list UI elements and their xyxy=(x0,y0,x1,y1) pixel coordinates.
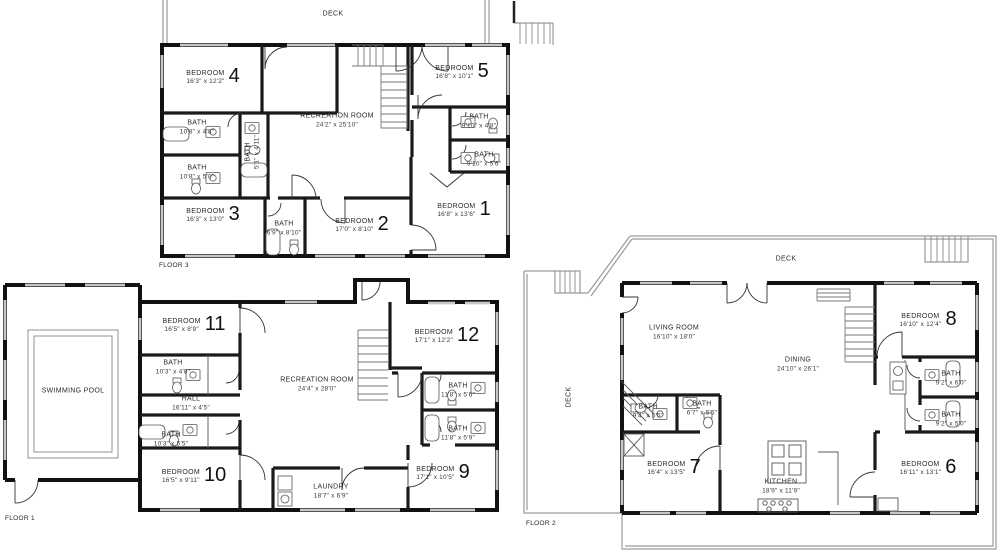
floor3-deck-stairs xyxy=(520,23,550,44)
floor2-plan xyxy=(524,236,996,549)
floor2-stairs xyxy=(817,289,875,362)
floor2-closet-lines xyxy=(624,360,905,456)
floor3-stairs xyxy=(352,45,407,128)
floor1-pool-walls xyxy=(5,285,140,512)
floor1-interior-walls xyxy=(140,302,497,510)
fireplace xyxy=(621,381,656,425)
floor1-plan xyxy=(5,280,497,512)
floor1-label: FLOOR 1 xyxy=(5,515,35,522)
floor2-label: FLOOR 2 xyxy=(526,520,556,527)
floor3-plan xyxy=(162,0,553,256)
floor-plan-page: DECKBEDROOM16'3" x 12'2"4BEDROOM16'8" x … xyxy=(0,0,1000,560)
floor2-interior-walls xyxy=(622,283,977,513)
kitchen-fixtures xyxy=(758,441,898,512)
floor1-fixtures xyxy=(139,370,485,507)
floor-plan-canvas xyxy=(0,0,1000,560)
floor3-label: FLOOR 3 xyxy=(159,262,189,269)
floor3-deck-outline xyxy=(163,0,553,45)
floor3-windows xyxy=(162,45,508,256)
pool-door-arc xyxy=(15,480,38,503)
floor1-stairs xyxy=(358,330,388,400)
swimming-pool-basin xyxy=(28,330,118,458)
floor3-interior-walls xyxy=(162,45,508,256)
floor3-outer-walls xyxy=(162,45,508,256)
